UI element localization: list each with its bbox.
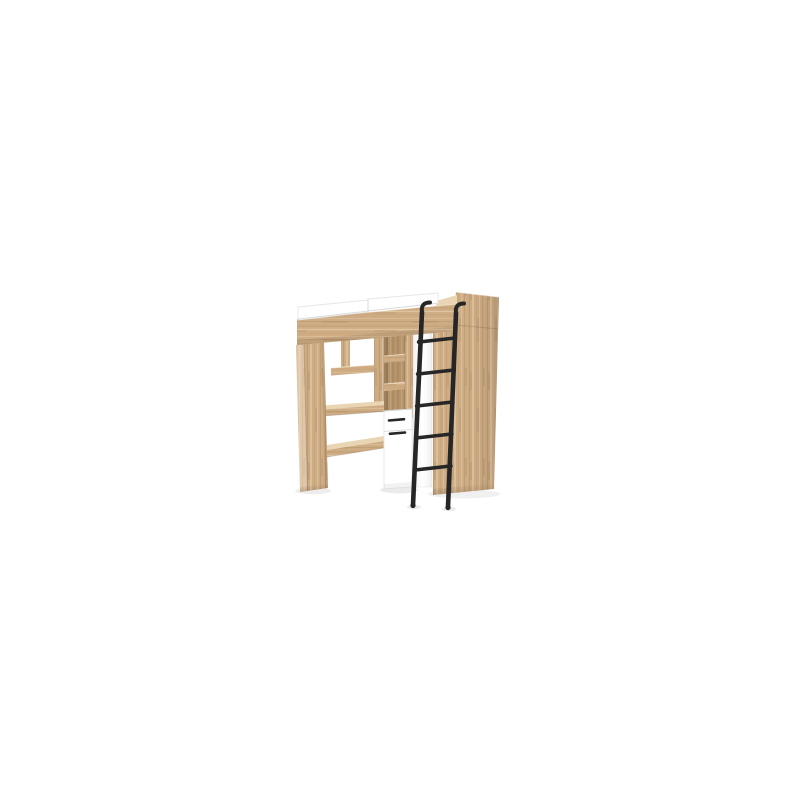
hanging-shelf-side (374, 337, 384, 405)
door-handle (390, 433, 405, 434)
ladder-left-foot (410, 503, 415, 508)
left-support-panel (296, 342, 328, 492)
shelf-column-right-board (405, 332, 413, 419)
product-image-loft-bed (0, 0, 800, 800)
loft-bed-illustration (0, 0, 800, 800)
shelf-column-inner-shadow (384, 336, 388, 419)
shelf-column (384, 332, 413, 419)
ladder-right-foot (445, 505, 450, 510)
drawer-handle (389, 419, 404, 420)
white-base-cabinet (384, 409, 412, 489)
